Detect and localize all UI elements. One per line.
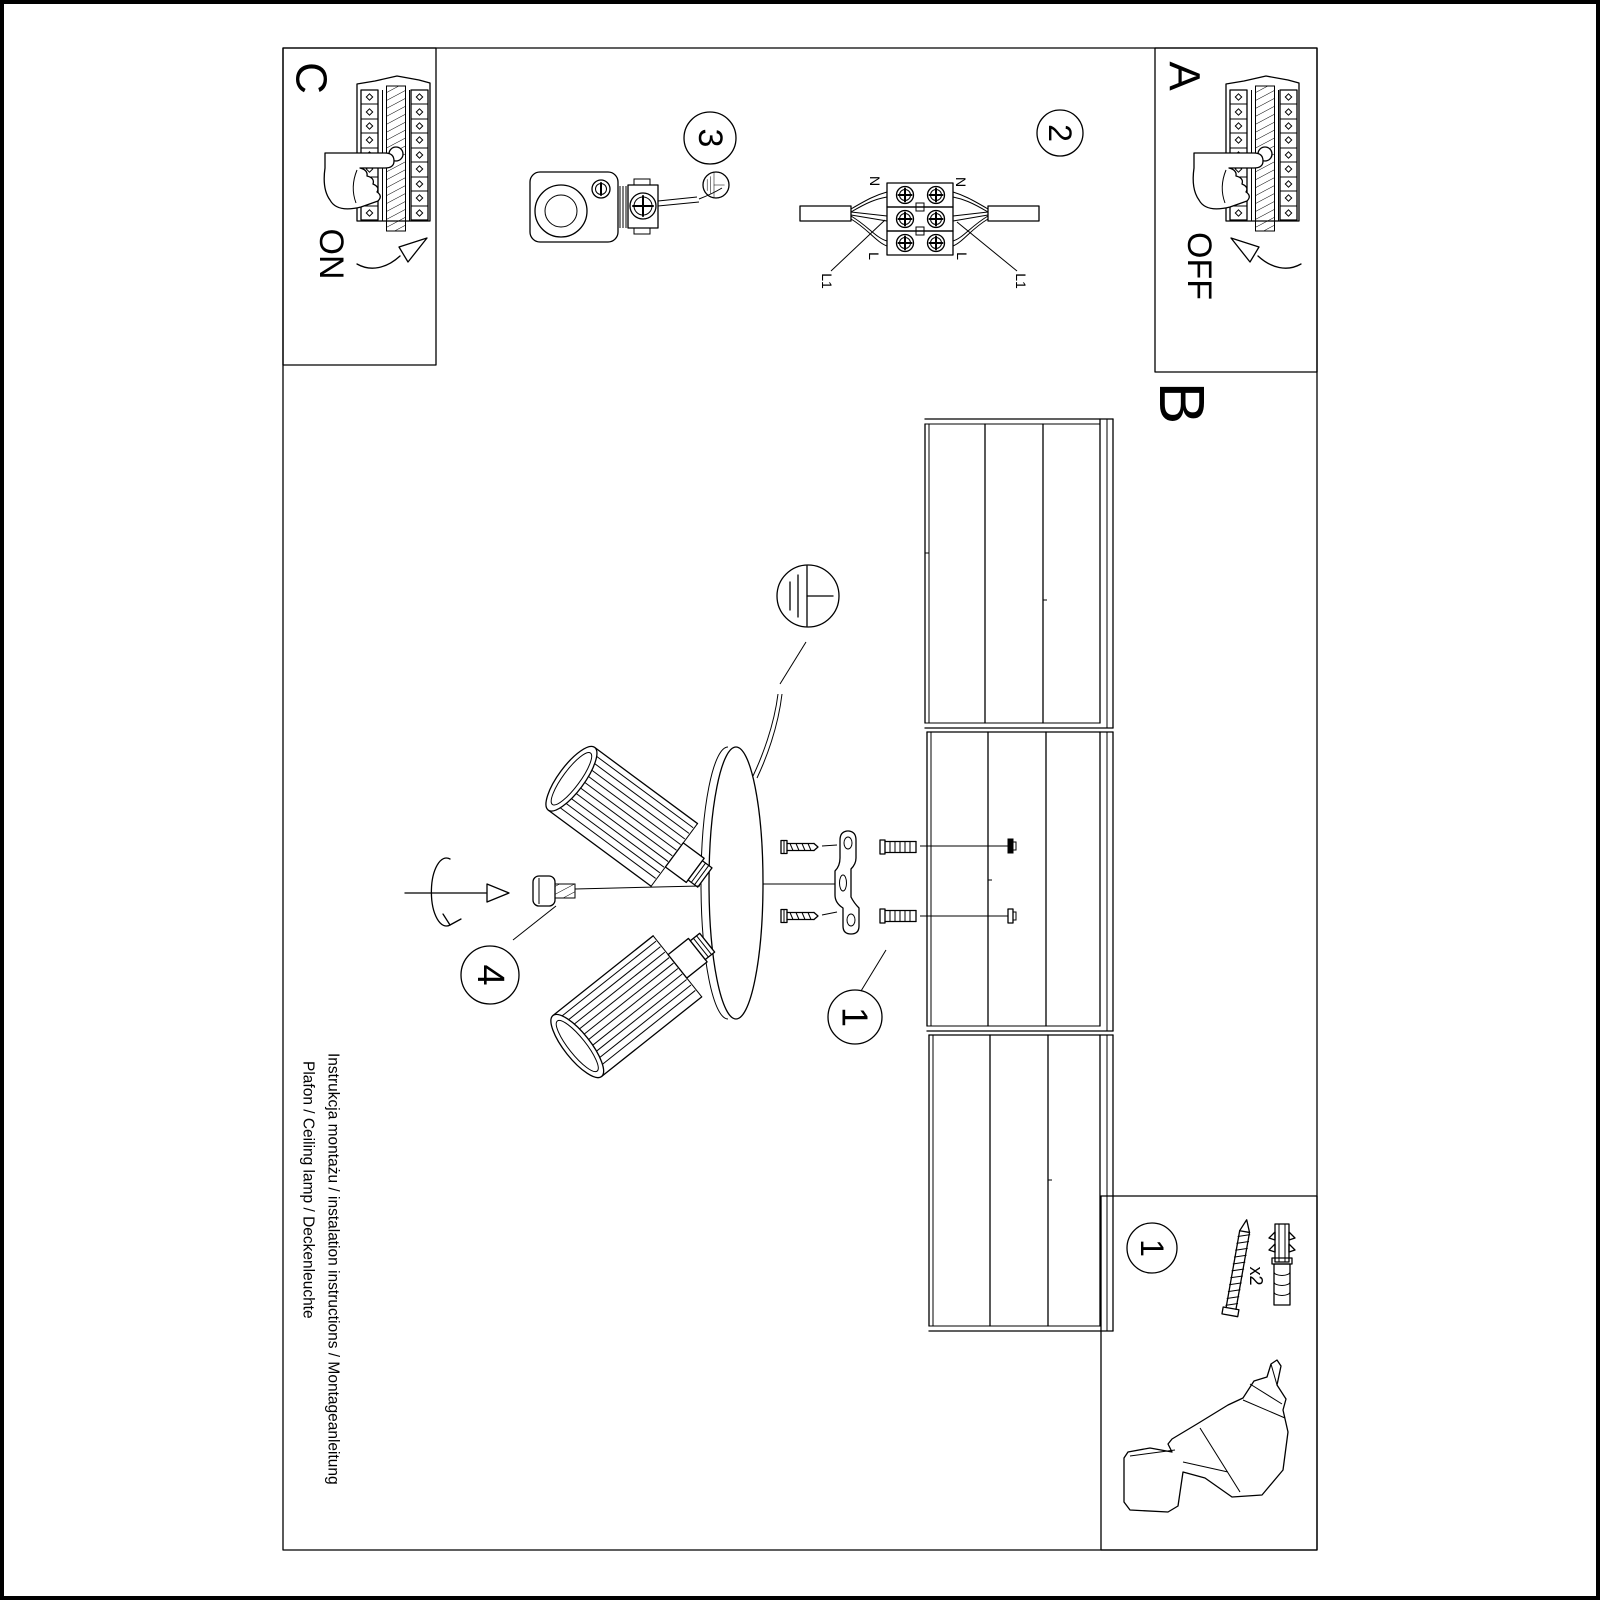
switch-on-label: ON [312,229,350,280]
step-4-number: 4 [469,964,511,985]
panel-c-label: C [287,62,336,94]
terminal-n-right: N [953,177,969,187]
terminal-l-left: L [866,252,882,260]
step-1-number: 1 [835,1007,876,1027]
instruction-sheet-page: C ON A OFF B 2 [0,0,1600,1600]
step-3-number: 3 [691,129,729,148]
image-border [2,2,1598,1598]
footer-line-2: Plafon / Ceiling lamp / Deckenleuchte [300,1061,317,1319]
step-2-number: 2 [1042,124,1078,142]
instruction-sheet: C ON A OFF B 2 [0,0,1600,1600]
part-1-number: 1 [1134,1239,1170,1257]
switch-off-label: OFF [1180,232,1218,300]
footer-line-1: Instrukcja montażu / instalation instruc… [325,1053,342,1485]
quantity-label: x2 [1246,1266,1266,1285]
panel-a-label: A [1160,61,1209,91]
terminal-l-right: L [954,252,970,260]
terminal-l1-right: L1 [1013,273,1029,289]
section-b-label: B [1146,382,1218,425]
terminal-l1-left: L1 [819,273,835,289]
terminal-n-left: N [867,176,883,186]
